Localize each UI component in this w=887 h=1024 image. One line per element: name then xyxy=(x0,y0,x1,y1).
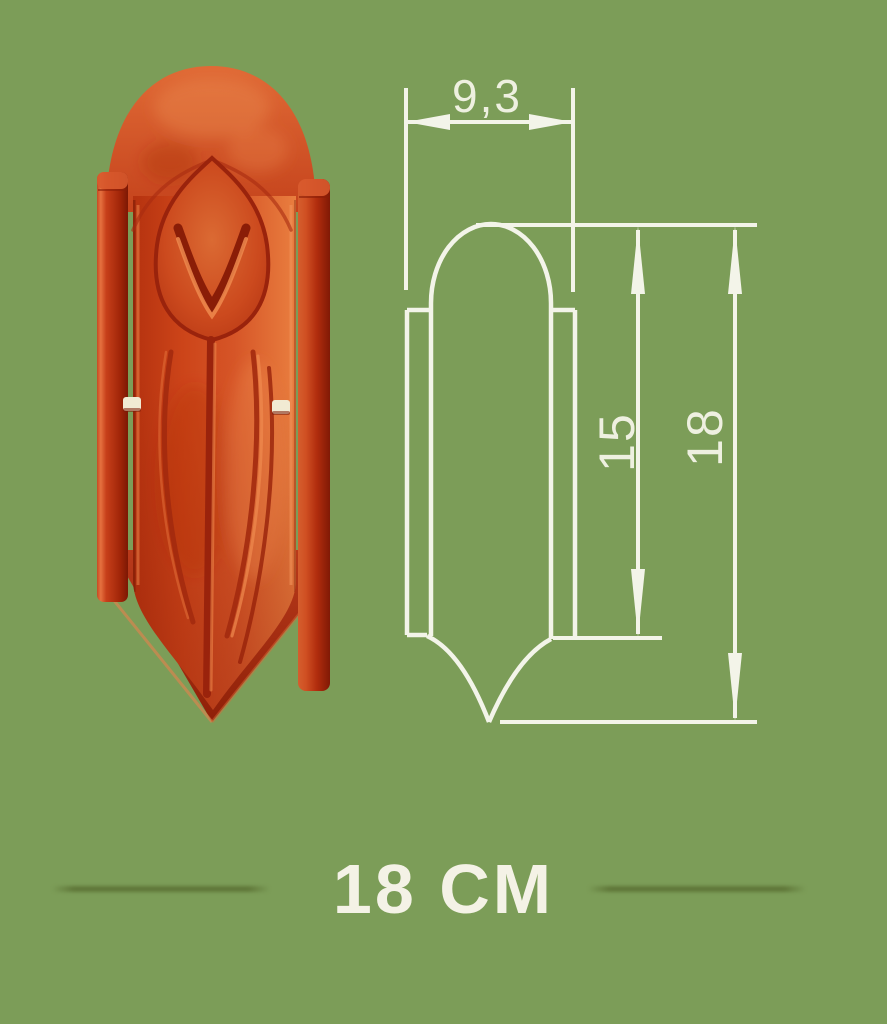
extension-lines xyxy=(406,88,757,722)
product-photo xyxy=(80,40,350,740)
dimension-width-label: 9,3 xyxy=(452,70,522,122)
arrow-left-icon xyxy=(406,114,450,130)
caption-divider-right xyxy=(588,886,806,892)
arrow-down-icon xyxy=(728,653,742,721)
arrow-down-icon xyxy=(631,569,645,637)
tile-right-flange xyxy=(298,179,330,691)
profile-outline xyxy=(407,224,575,722)
dimension-inner-height: 15 xyxy=(589,226,645,637)
product-card: 9,3 15 18 18 CM xyxy=(0,0,887,1024)
arrow-up-icon xyxy=(631,226,645,294)
arrow-right-icon xyxy=(529,114,573,130)
dimension-width: 9,3 xyxy=(406,70,573,130)
tile-left-flange xyxy=(97,172,128,602)
dimension-total-height: 18 xyxy=(677,226,742,721)
nail-hole-right xyxy=(272,400,290,415)
dimension-total-height-label: 18 xyxy=(677,407,733,467)
technical-drawing: 9,3 15 18 xyxy=(390,60,770,740)
arrow-up-icon xyxy=(728,226,742,294)
nail-hole-left xyxy=(123,397,141,412)
dimension-inner-height-label: 15 xyxy=(589,412,645,472)
